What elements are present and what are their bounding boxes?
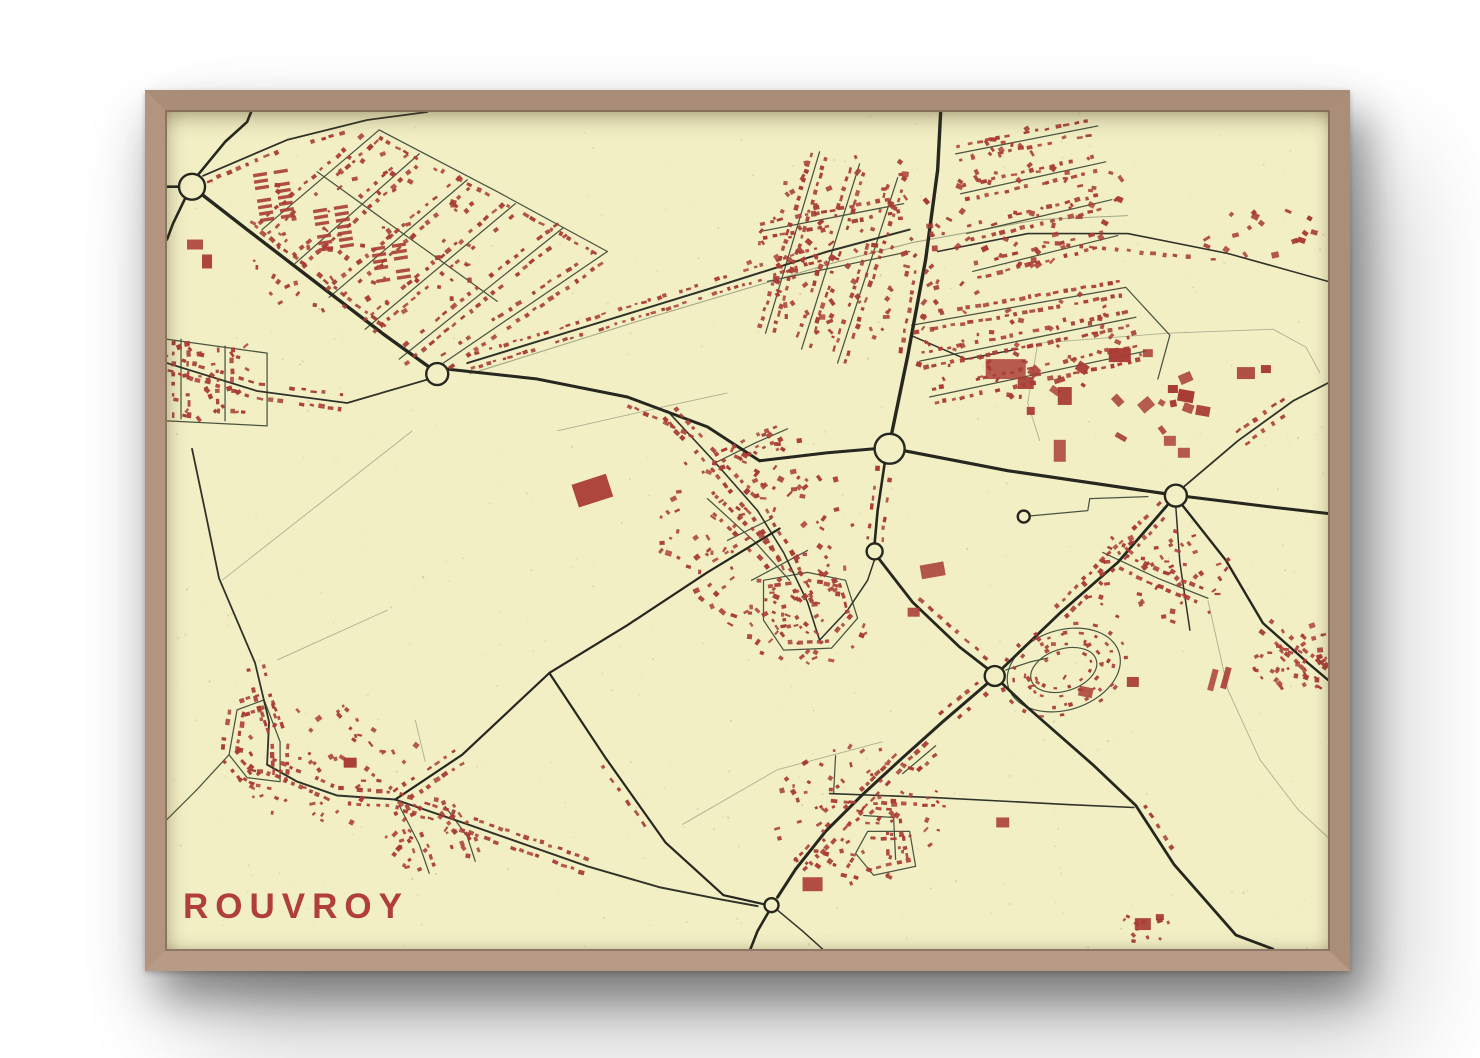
poster-frame: ROUVROY xyxy=(145,90,1350,971)
map-title: ROUVROY xyxy=(183,887,409,927)
city-map xyxy=(167,112,1328,949)
map-print: ROUVROY xyxy=(167,112,1328,949)
wall-background: ROUVROY xyxy=(0,0,1480,1058)
